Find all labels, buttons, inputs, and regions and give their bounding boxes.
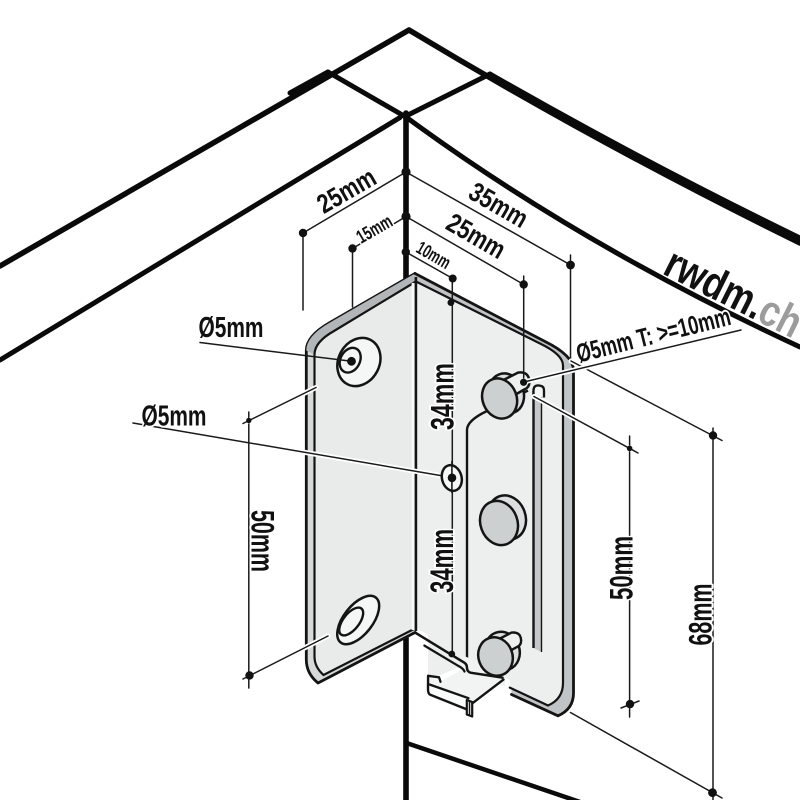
svg-text:34mm: 34mm [424,529,460,593]
svg-text:34mm: 34mm [425,363,461,430]
svg-text:Ø5mm: Ø5mm [199,312,264,344]
svg-text:68mm: 68mm [682,584,718,646]
svg-text:50mm: 50mm [604,536,640,600]
svg-text:Ø5mm: Ø5mm [142,401,207,433]
svg-text:50mm: 50mm [245,510,281,572]
